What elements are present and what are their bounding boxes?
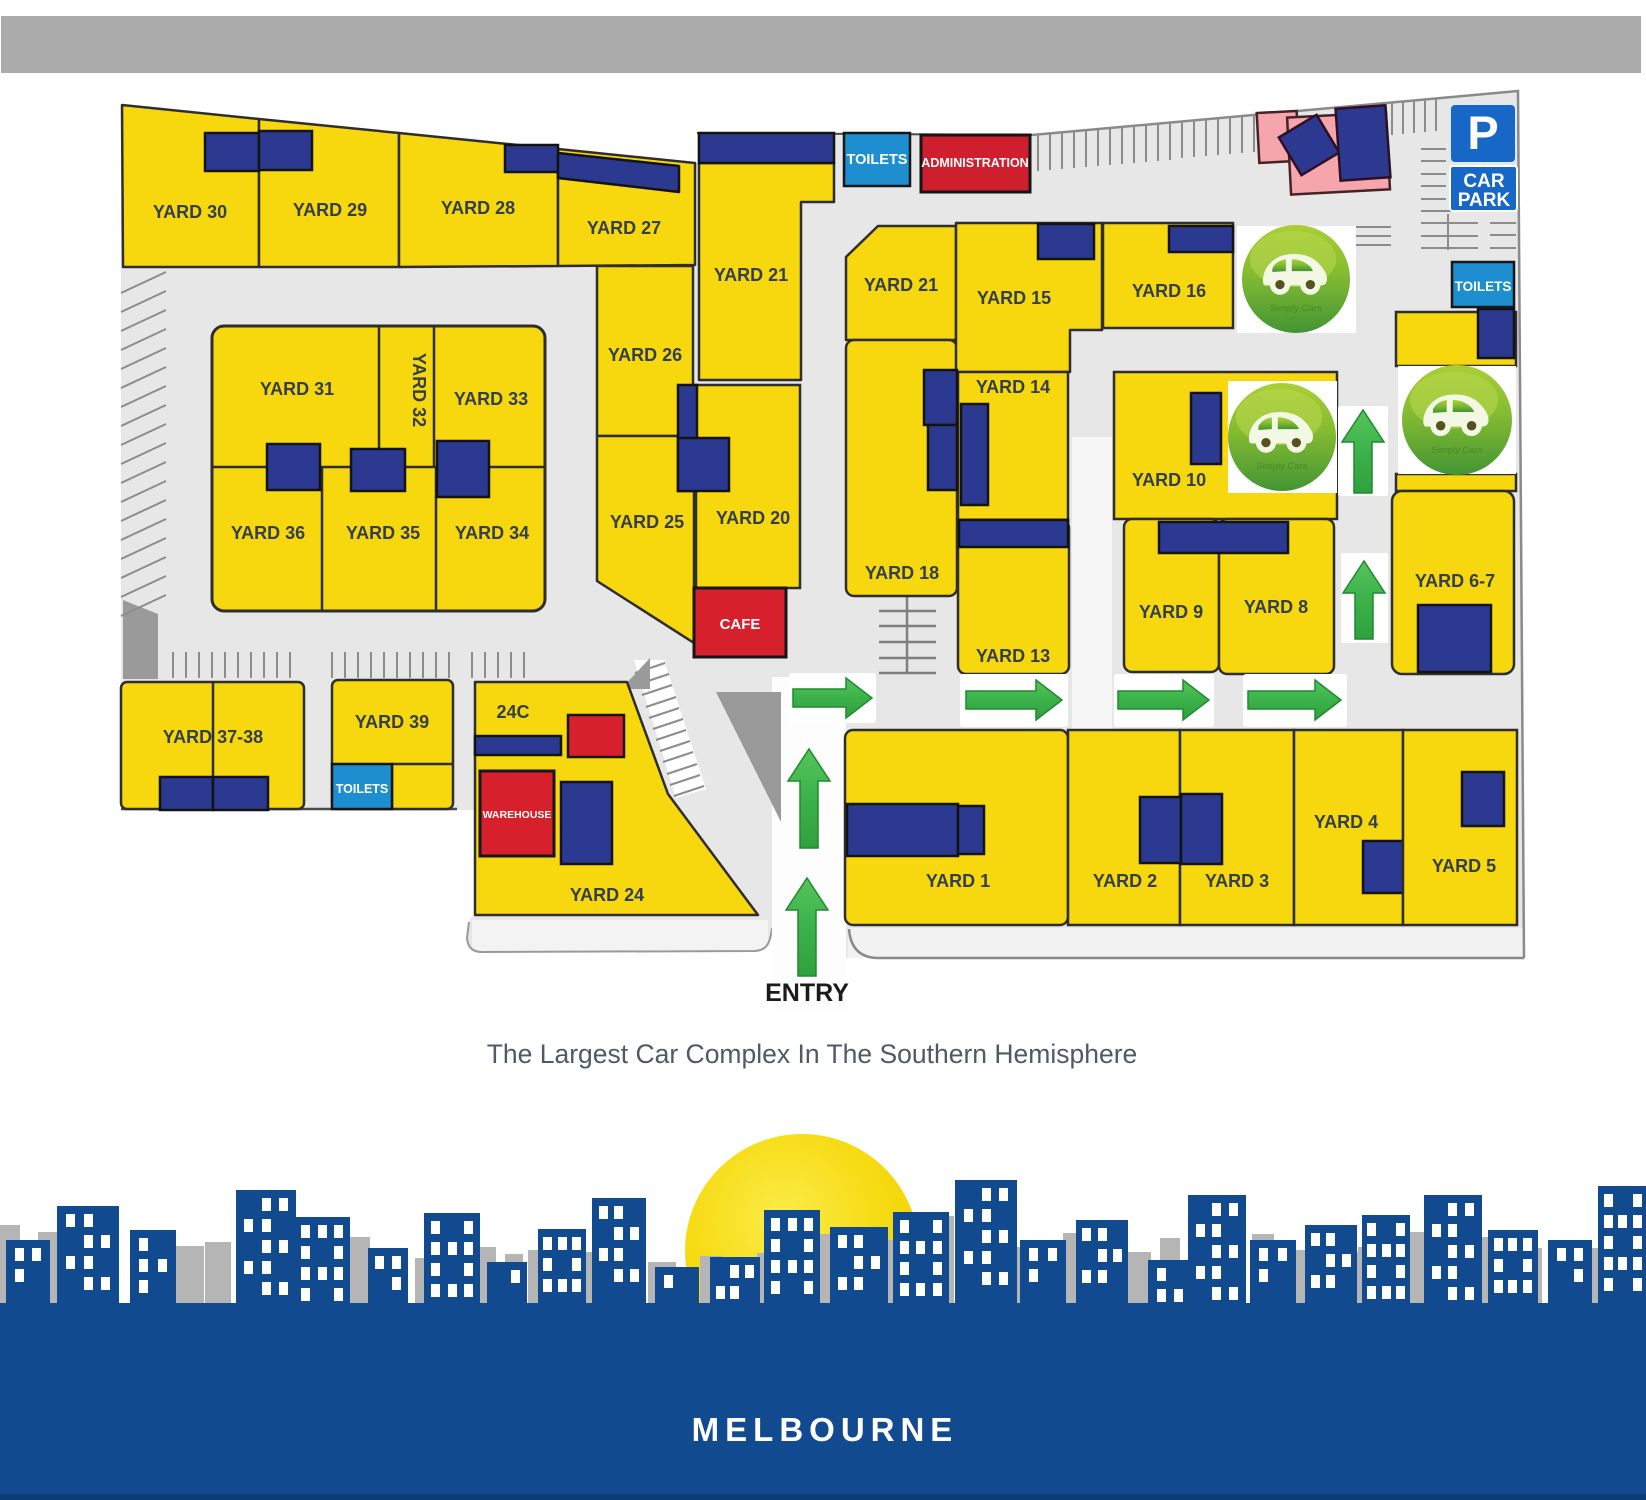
svg-text:YARD 9: YARD 9: [1139, 602, 1203, 622]
svg-text:The Largest Car Complex In The: The Largest Car Complex In The Southern …: [487, 1039, 1138, 1069]
svg-text:YARD 10: YARD 10: [1132, 470, 1206, 490]
svg-text:TOILETS: TOILETS: [336, 782, 389, 796]
svg-text:YARD 26: YARD 26: [608, 345, 682, 365]
svg-text:24C: 24C: [496, 702, 529, 722]
svg-text:P: P: [1467, 106, 1498, 159]
svg-text:YARD 4: YARD 4: [1314, 812, 1378, 832]
svg-text:PARK: PARK: [1458, 190, 1511, 211]
svg-text:Simply Cars: Simply Cars: [1270, 303, 1321, 314]
svg-text:YARD 27: YARD 27: [587, 218, 661, 238]
svg-text:YARD 5: YARD 5: [1432, 856, 1496, 876]
svg-text:YARD 31: YARD 31: [260, 379, 334, 399]
svg-text:YARD 21: YARD 21: [864, 275, 938, 295]
svg-text:YARD 14: YARD 14: [976, 377, 1050, 397]
svg-text:YARD 36: YARD 36: [231, 523, 305, 543]
svg-text:YARD 24: YARD 24: [570, 885, 644, 905]
svg-text:YARD 6-7: YARD 6-7: [1415, 571, 1495, 591]
svg-text:CAFE: CAFE: [720, 616, 761, 633]
svg-text:ADMINISTRATION: ADMINISTRATION: [921, 156, 1028, 170]
svg-text:YARD 2: YARD 2: [1093, 871, 1157, 891]
svg-text:YARD 20: YARD 20: [716, 508, 790, 528]
svg-text:YARD 30: YARD 30: [153, 202, 227, 222]
svg-text:YARD 29: YARD 29: [293, 200, 367, 220]
svg-text:TOILETS: TOILETS: [1455, 279, 1512, 294]
svg-text:YARD 1: YARD 1: [926, 871, 990, 891]
svg-text:YARD 8: YARD 8: [1244, 597, 1308, 617]
svg-text:YARD 18: YARD 18: [865, 563, 939, 583]
svg-text:YARD 35: YARD 35: [346, 523, 420, 543]
svg-text:Simply Cars: Simply Cars: [1431, 445, 1482, 456]
svg-text:ENTRY: ENTRY: [765, 979, 849, 1007]
svg-text:Simply Cars: Simply Cars: [1256, 461, 1307, 472]
svg-text:CAR: CAR: [1463, 171, 1504, 192]
svg-text:YARD 33: YARD 33: [454, 389, 528, 409]
svg-text:YARD 15: YARD 15: [977, 288, 1051, 308]
svg-text:YARD 16: YARD 16: [1132, 281, 1206, 301]
svg-text:YARD 13: YARD 13: [976, 646, 1050, 666]
svg-text:YARD 25: YARD 25: [610, 512, 684, 532]
svg-text:YARD 28: YARD 28: [441, 198, 515, 218]
svg-text:YARD 32: YARD 32: [409, 353, 429, 427]
svg-text:YARD 21: YARD 21: [714, 265, 788, 285]
svg-text:YARD 3: YARD 3: [1205, 871, 1269, 891]
svg-text:YARD 34: YARD 34: [455, 523, 529, 543]
svg-text:YARD 39: YARD 39: [355, 712, 429, 732]
svg-text:YARD 37-38: YARD 37-38: [163, 727, 263, 747]
svg-text:WAREHOUSE: WAREHOUSE: [483, 809, 552, 821]
svg-text:TOILETS: TOILETS: [847, 152, 908, 168]
svg-text:MELBOURNE: MELBOURNE: [692, 1411, 959, 1448]
